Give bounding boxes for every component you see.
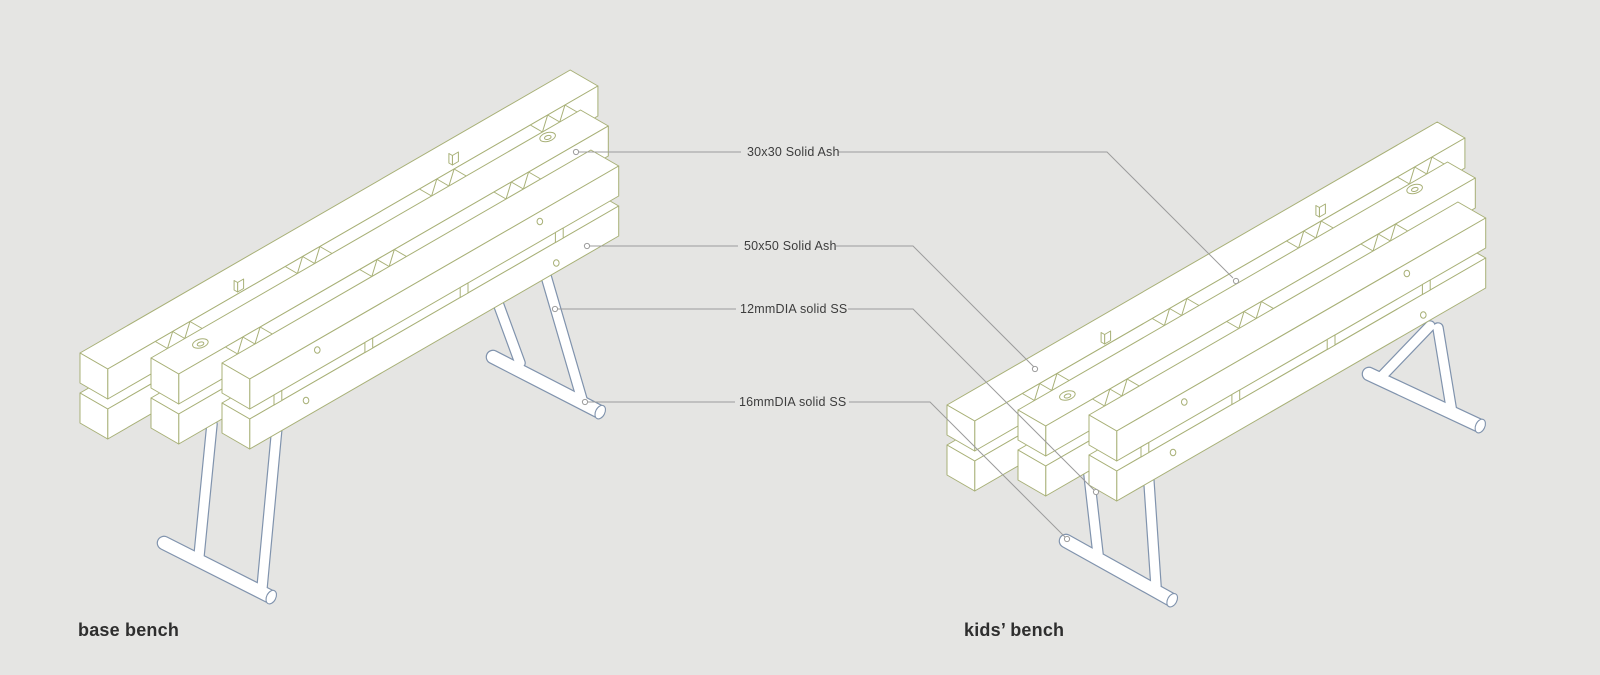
annotation-label-30x30-solid-ash: 30x30 Solid Ash — [747, 143, 840, 161]
kids-bench-title: kids’ bench — [964, 620, 1064, 641]
diagram-stage: 30x30 Solid Ash 50x50 Solid Ash 12mmDIA … — [0, 0, 1600, 675]
kids-bench-illustration — [947, 122, 1487, 609]
annotation-label-16mmdia-solid-ss: 16mmDIA solid SS — [739, 393, 846, 411]
bench-illustration-canvas — [0, 0, 1600, 675]
annotation-label-50x50-solid-ash: 50x50 Solid Ash — [744, 237, 837, 255]
base-bench-illustration — [80, 70, 619, 606]
annotation-label-12mmdia-solid-ss: 12mmDIA solid SS — [740, 300, 847, 318]
base-bench-title: base bench — [78, 620, 179, 641]
